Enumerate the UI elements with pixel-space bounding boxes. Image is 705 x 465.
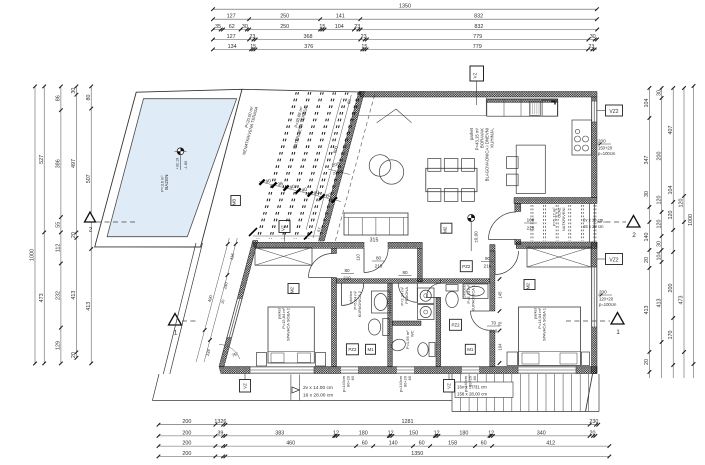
svg-text:pločice: pločice <box>348 290 353 303</box>
svg-text:P=2,24 m²: P=2,24 m² <box>400 286 405 305</box>
svg-text:±0,00: ±0,00 <box>474 231 479 243</box>
svg-text:180: 180 <box>459 430 468 436</box>
svg-text:pločice: pločice <box>462 284 467 297</box>
svg-text:200: 200 <box>182 441 191 447</box>
svg-text:p=140cm: p=140cm <box>341 376 346 392</box>
svg-text:200: 200 <box>182 430 191 436</box>
svg-text:386: 386 <box>56 159 62 168</box>
svg-text:P=43,15 m²: P=43,15 m² <box>475 127 480 150</box>
svg-text:P=116 m²: P=116 m² <box>161 175 165 192</box>
svg-text:158 x 28,00 cm: 158 x 28,00 cm <box>457 392 487 397</box>
svg-text:2v x 14.00 cm: 2v x 14.00 cm <box>303 385 333 391</box>
svg-text:parket: parket <box>533 307 538 319</box>
svg-text:110: 110 <box>356 253 361 260</box>
svg-text:P=5,12 m²: P=5,12 m² <box>552 207 557 226</box>
svg-text:210: 210 <box>490 329 498 334</box>
svg-text:-1.60: -1.60 <box>184 161 188 170</box>
svg-text:VZ: VZ <box>447 383 452 389</box>
svg-text:120: 120 <box>656 196 662 205</box>
svg-text:30: 30 <box>656 241 662 247</box>
svg-text:200: 200 <box>182 419 191 425</box>
svg-text:1326: 1326 <box>214 419 226 425</box>
svg-text:NATKRIVENI: NATKRIVENI <box>561 208 566 232</box>
svg-text:412: 412 <box>546 441 555 447</box>
svg-text:parket: parket <box>469 127 474 140</box>
svg-text:779: 779 <box>473 44 482 50</box>
svg-text:200: 200 <box>656 152 662 161</box>
svg-text:VZ2: VZ2 <box>609 258 618 264</box>
svg-text:30: 30 <box>71 88 77 94</box>
svg-text:250: 250 <box>280 14 289 20</box>
svg-text:80+20: 80+20 <box>346 375 351 387</box>
svg-text:P=14,04 m²: P=14,04 m² <box>537 307 542 328</box>
svg-text:p=140cm: p=140cm <box>463 376 468 392</box>
svg-text:104: 104 <box>498 343 503 351</box>
svg-text:127: 127 <box>227 34 236 40</box>
svg-text:PZ2: PZ2 <box>348 347 357 352</box>
svg-text:145: 145 <box>498 291 503 299</box>
svg-text:413: 413 <box>71 291 77 300</box>
svg-text:127: 127 <box>227 14 236 20</box>
svg-text:129: 129 <box>56 341 62 350</box>
svg-text:140: 140 <box>389 441 398 447</box>
svg-text:200: 200 <box>182 451 191 457</box>
svg-text:527: 527 <box>39 155 45 164</box>
svg-text:30: 30 <box>644 191 650 197</box>
svg-text:383: 383 <box>275 430 284 436</box>
svg-text:35: 35 <box>215 24 221 30</box>
svg-text:347: 347 <box>644 156 650 165</box>
svg-text:ULAZ: ULAZ <box>557 207 562 218</box>
svg-text:P=5,24 m²: P=5,24 m² <box>353 290 358 309</box>
svg-text:120: 120 <box>679 199 685 208</box>
svg-text:60: 60 <box>481 441 487 447</box>
svg-text:200: 200 <box>599 290 607 295</box>
svg-text:134: 134 <box>228 44 237 50</box>
svg-text:407: 407 <box>668 126 674 135</box>
svg-text:M2: M2 <box>442 226 447 233</box>
svg-text:120: 120 <box>668 211 674 220</box>
svg-text:VZ2: VZ2 <box>609 109 618 115</box>
svg-text:210: 210 <box>343 276 351 281</box>
svg-text:1350: 1350 <box>411 451 423 457</box>
svg-text:210: 210 <box>484 264 492 269</box>
svg-text:232: 232 <box>56 291 62 300</box>
svg-text:M1: M1 <box>367 347 374 352</box>
svg-text:KUPAONICA 2: KUPAONICA 2 <box>357 290 362 317</box>
svg-text:M3: M3 <box>232 198 237 205</box>
svg-text:p=140cm: p=140cm <box>398 376 403 392</box>
svg-text:20: 20 <box>590 430 596 436</box>
svg-text:SPAVAĆA SOBA 2: SPAVAĆA SOBA 2 <box>286 307 291 341</box>
svg-text:80+20: 80+20 <box>403 375 408 387</box>
svg-text:P=1,95 m²: P=1,95 m² <box>405 330 410 349</box>
svg-text:120: 120 <box>656 220 662 229</box>
svg-text:16 x 28 cm: 16 x 28 cm <box>583 224 604 229</box>
svg-text:90: 90 <box>485 256 491 261</box>
svg-text:2: 2 <box>632 232 636 239</box>
svg-text:413: 413 <box>86 302 92 311</box>
svg-text:16 x 28.00 cm: 16 x 28.00 cm <box>303 393 333 399</box>
svg-text:60: 60 <box>419 441 425 447</box>
svg-text:210: 210 <box>401 278 409 283</box>
svg-text:M2: M2 <box>526 282 531 289</box>
svg-text:M1: M1 <box>467 347 474 352</box>
svg-text:86: 86 <box>56 95 62 101</box>
svg-text:340: 340 <box>537 430 546 436</box>
svg-text:70: 70 <box>498 321 503 326</box>
svg-text:55: 55 <box>56 222 62 228</box>
svg-text:M2: M2 <box>290 286 295 293</box>
svg-text:VZ: VZ <box>473 72 478 78</box>
svg-text:104: 104 <box>656 252 662 261</box>
svg-text:112: 112 <box>56 244 62 253</box>
svg-text:150: 150 <box>409 430 418 436</box>
svg-text:1281: 1281 <box>402 419 414 425</box>
svg-text:104: 104 <box>644 99 650 108</box>
svg-text:80: 80 <box>376 256 382 261</box>
svg-text:1000: 1000 <box>30 249 36 261</box>
svg-text:210: 210 <box>375 264 383 269</box>
svg-text:80: 80 <box>344 268 350 273</box>
svg-text:376: 376 <box>304 44 313 50</box>
svg-text:180: 180 <box>359 430 368 436</box>
svg-text:BORAVAK: BORAVAK <box>480 128 485 148</box>
svg-text:p=100cm: p=100cm <box>598 151 616 156</box>
svg-text:PZ2: PZ2 <box>462 264 471 269</box>
svg-text:20: 20 <box>644 257 650 263</box>
svg-text:1: 1 <box>616 329 620 336</box>
svg-text:P=15,84 m²: P=15,84 m² <box>281 307 286 328</box>
svg-text:473: 473 <box>39 293 45 302</box>
svg-text:1350: 1350 <box>399 4 411 10</box>
svg-text:+32.19: +32.19 <box>176 158 180 170</box>
svg-text:20: 20 <box>71 232 77 238</box>
svg-text:BLAGOVAONICA I DNEVNI: BLAGOVAONICA I DNEVNI <box>485 128 490 181</box>
svg-text:30: 30 <box>656 90 662 96</box>
svg-text:VZ: VZ <box>243 383 248 389</box>
svg-text:20: 20 <box>644 359 650 365</box>
svg-text:120+20: 120+20 <box>599 297 614 302</box>
svg-text:PRAONA: PRAONA <box>404 287 409 304</box>
svg-text:104: 104 <box>335 24 344 30</box>
svg-text:315: 315 <box>370 237 379 243</box>
svg-text:SPAVAĆA SOBA 1: SPAVAĆA SOBA 1 <box>542 307 547 341</box>
svg-text:200: 200 <box>668 284 674 293</box>
svg-text:368: 368 <box>304 34 313 40</box>
svg-text:60: 60 <box>362 441 368 447</box>
svg-text:250: 250 <box>280 24 289 30</box>
svg-text:62: 62 <box>229 24 235 30</box>
svg-text:200: 200 <box>598 139 606 144</box>
svg-text:779: 779 <box>473 34 482 40</box>
svg-text:80+20: 80+20 <box>468 375 473 387</box>
svg-text:507: 507 <box>86 174 92 183</box>
svg-text:BAZEN: BAZEN <box>164 175 169 190</box>
svg-text:39: 39 <box>217 430 223 436</box>
svg-text:413: 413 <box>656 299 662 308</box>
svg-text:497: 497 <box>71 159 77 168</box>
svg-text:158: 158 <box>448 441 457 447</box>
svg-text:20: 20 <box>71 352 77 358</box>
svg-text:413: 413 <box>644 306 650 315</box>
svg-text:100: 100 <box>527 218 535 223</box>
svg-text:80: 80 <box>402 270 408 275</box>
svg-text:150+20: 150+20 <box>598 146 613 151</box>
svg-text:832: 832 <box>474 14 483 20</box>
svg-text:WC: WC <box>410 330 415 337</box>
svg-text:140: 140 <box>644 233 650 242</box>
svg-text:141: 141 <box>336 14 345 20</box>
svg-text:2: 2 <box>89 227 93 234</box>
svg-text:parket: parket <box>277 307 282 319</box>
svg-text:70: 70 <box>491 321 497 326</box>
svg-text:80: 80 <box>86 95 92 101</box>
svg-text:104: 104 <box>668 186 674 195</box>
svg-text:473: 473 <box>679 296 685 305</box>
svg-text:PZ2: PZ2 <box>451 322 460 327</box>
svg-text:832: 832 <box>474 24 483 30</box>
svg-text:KUHINJA,: KUHINJA, <box>490 128 495 148</box>
svg-text:1000: 1000 <box>688 214 694 226</box>
svg-text:p=100cm: p=100cm <box>599 302 617 307</box>
svg-text:KUPAONICA 1: KUPAONICA 1 <box>471 284 476 311</box>
svg-text:460: 460 <box>286 441 295 447</box>
svg-text:220: 220 <box>527 226 535 231</box>
svg-text:170: 170 <box>668 331 674 340</box>
